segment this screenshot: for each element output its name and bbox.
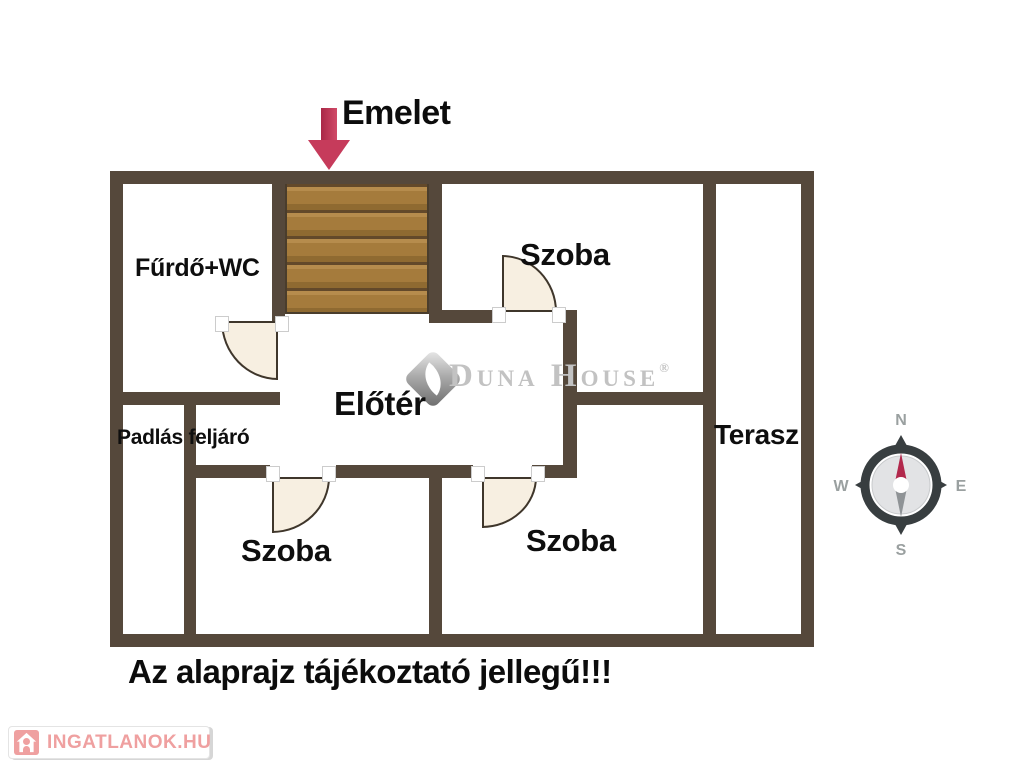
room-label-bathroom: Fűrdő+WC <box>135 254 260 283</box>
door-hinge-mark <box>492 307 506 323</box>
compass-label-e: E <box>956 478 967 495</box>
wall-terrace-left <box>703 171 716 647</box>
dunahouse-brand-name: Duna House <box>449 358 659 394</box>
floorplan-image: Emelet Fűrdő+WC Szoba Előtér Padlás felj… <box>0 0 1024 768</box>
door-arc-room-bottom-mid <box>482 477 537 528</box>
page-title: Emelet <box>342 94 451 133</box>
door-arc-bathroom <box>221 321 278 380</box>
room-label-room-top: Szoba <box>520 237 610 273</box>
ingatlanok-badge: INGATLANOK.HU <box>8 726 210 759</box>
house-icon <box>14 730 39 755</box>
compass-hub <box>893 477 909 493</box>
room-label-room-bottom-mid: Szoba <box>526 523 616 559</box>
door-hinge-mark <box>266 466 280 482</box>
room-label-hall: Előtér <box>334 385 426 423</box>
wall-hall-bottom-2 <box>336 465 473 478</box>
registered-trademark-icon: ® <box>659 360 669 375</box>
compass-label-n: N <box>895 412 907 429</box>
door-hinge-mark <box>215 316 229 332</box>
door-hinge-mark <box>531 466 545 482</box>
wall-stairs-right <box>429 171 442 323</box>
house-icon-window <box>23 738 30 745</box>
wall-outer-right <box>801 171 814 647</box>
door-hinge-mark <box>552 307 566 323</box>
wall-hall-bottom-1 <box>184 465 270 478</box>
room-label-room-bottom-left: Szoba <box>241 533 331 569</box>
compass-label-w: W <box>833 478 849 495</box>
ingatlanok-label: INGATLANOK.HU <box>47 732 211 754</box>
wall-bathroom-stairs <box>272 171 285 323</box>
compass-rose-icon: N S W E <box>827 407 975 559</box>
room-label-attic-access: Padlás feljáró <box>117 426 249 450</box>
down-arrow-icon <box>308 140 350 170</box>
door-hinge-mark <box>322 466 336 482</box>
wall-outer-left <box>110 171 123 647</box>
door-arc-room-bottom-left <box>272 477 330 533</box>
down-arrow-icon <box>321 108 337 144</box>
door-hinge-mark <box>471 466 485 482</box>
staircase <box>285 184 429 314</box>
room-label-terrace: Terasz <box>714 419 799 451</box>
disclaimer-text: Az alaprajz tájékoztató jellegű!!! <box>128 653 612 691</box>
wall-bottom-rooms-divider <box>429 465 442 647</box>
dunahouse-brand-text: Duna House® <box>449 358 669 395</box>
door-hinge-mark <box>275 316 289 332</box>
house-icon-door <box>23 746 30 755</box>
compass-label-s: S <box>896 542 907 559</box>
